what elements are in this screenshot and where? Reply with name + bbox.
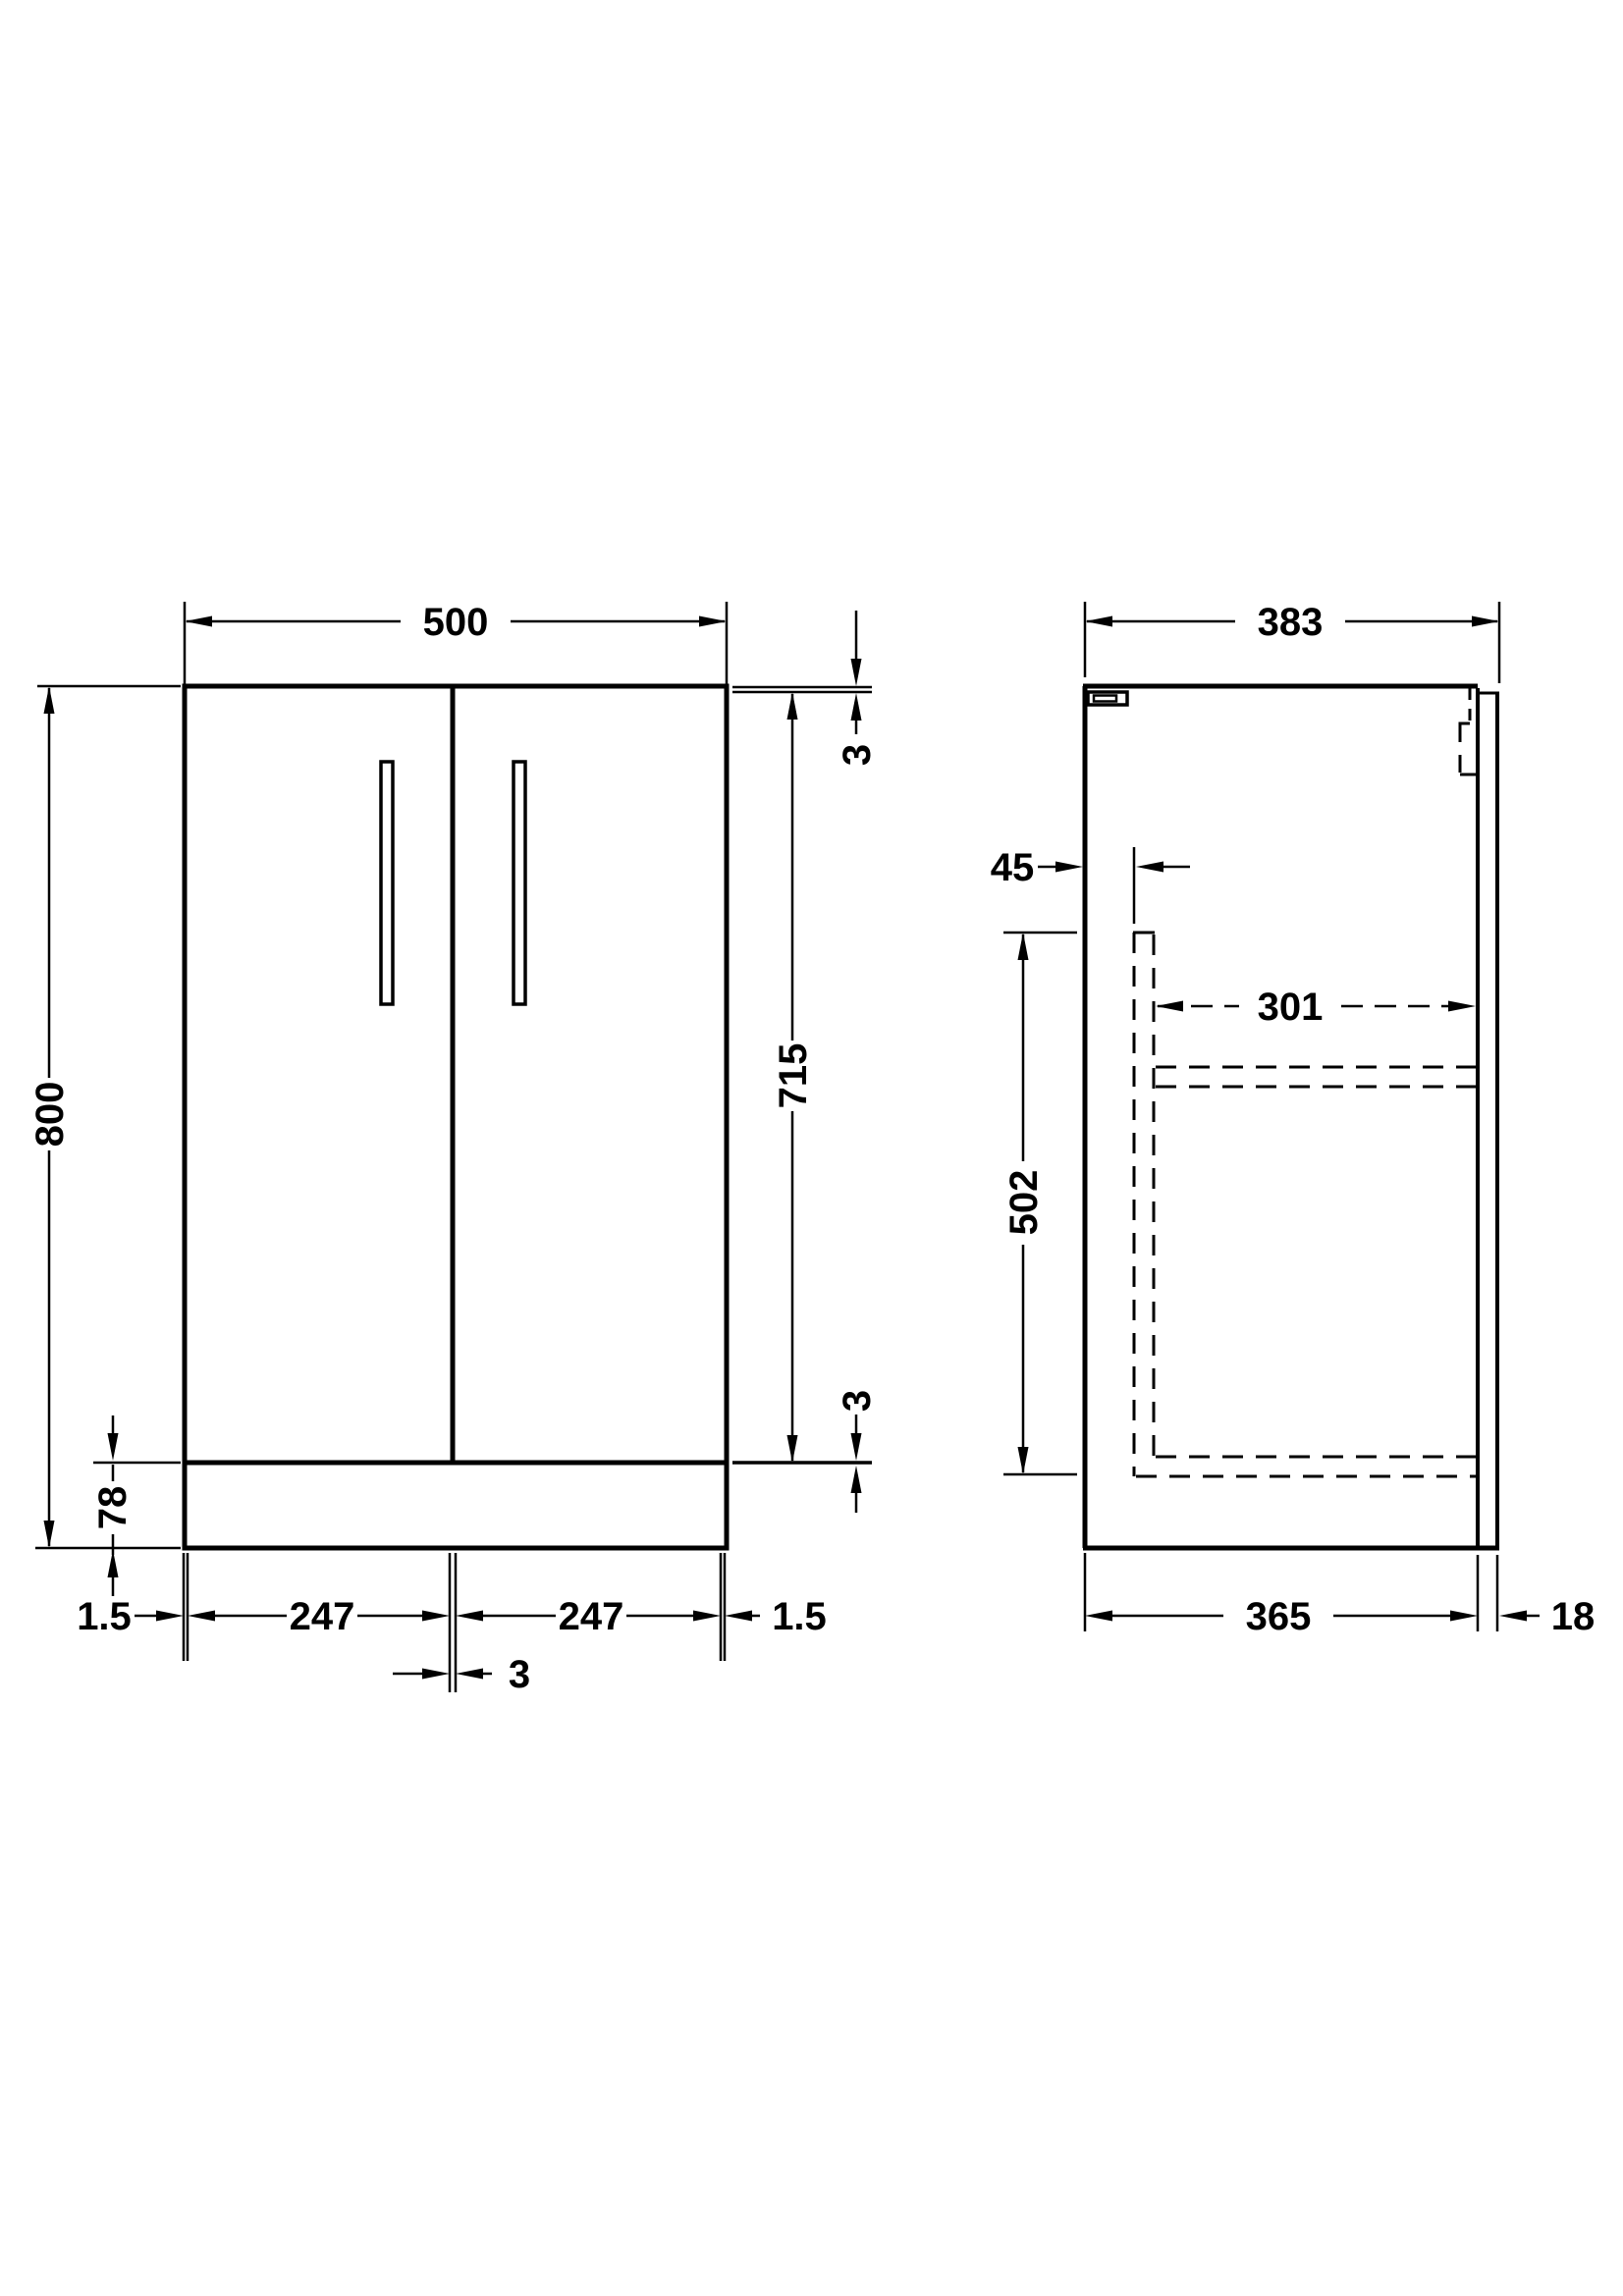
side-door-inset-label: 45 (991, 846, 1035, 889)
side-back-panel-thickness-label: 18 (1551, 1595, 1596, 1638)
fixing-bracket-slot (1094, 696, 1116, 702)
front-left-edge-gap-label: 1.5 (77, 1595, 132, 1638)
front-top-gap-label: 3 (836, 744, 879, 766)
cabinet-outline (185, 686, 727, 1548)
front-bottom-gap-label: 3 (836, 1390, 879, 1412)
side-view (1083, 686, 1499, 1548)
right-door-handle (514, 762, 525, 1004)
left-door-handle (381, 762, 393, 1004)
drawing-sheet: 500 800 715 3 3 (0, 0, 1623, 2296)
front-right-edge-gap-label: 1.5 (772, 1595, 827, 1638)
front-overall-height-label: 800 (28, 1082, 72, 1148)
front-left-door-width-label: 247 (290, 1595, 355, 1638)
dim-front-bottom-chain (135, 1553, 760, 1692)
front-right-door-width-label: 247 (559, 1595, 624, 1638)
dim-side-door-inset (1038, 847, 1190, 924)
side-overall-depth-label: 383 (1258, 601, 1324, 644)
side-carcass-depth-label: 365 (1246, 1595, 1312, 1638)
front-plinth-height-label: 78 (91, 1486, 135, 1530)
dim-front-center-gap (393, 1669, 492, 1680)
side-interior-depth-label: 301 (1258, 986, 1324, 1029)
front-view (185, 686, 727, 1548)
front-overall-width-label: 500 (423, 601, 489, 644)
side-interior-height-label: 502 (1002, 1170, 1046, 1236)
front-door-height-label: 715 (772, 1043, 815, 1109)
hinge-recess-profile (1460, 723, 1477, 774)
dim-front-top-gap (851, 611, 862, 734)
dim-side-bottom-chain (1085, 1553, 1540, 1631)
front-center-gap-label: 3 (509, 1653, 530, 1696)
